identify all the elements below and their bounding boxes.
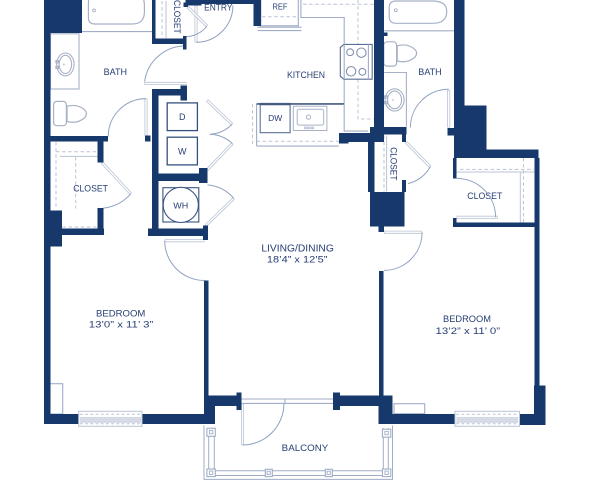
svg-text:CLOSET: CLOSET <box>171 0 182 34</box>
svg-text:13’2” x 11’ 0”: 13’2” x 11’ 0” <box>436 326 501 336</box>
svg-text:W: W <box>178 146 187 156</box>
svg-text:DW: DW <box>268 113 282 123</box>
svg-text:13’0” x 11’ 3”: 13’0” x 11’ 3” <box>89 319 154 329</box>
svg-text:WH: WH <box>173 200 188 210</box>
svg-text:CLOSET: CLOSET <box>73 184 108 195</box>
svg-text:REF: REF <box>273 2 288 11</box>
svg-text:18’4” x 12’5”: 18’4” x 12’5” <box>267 254 328 264</box>
svg-text:BALCONY: BALCONY <box>282 443 329 454</box>
svg-text:BATH: BATH <box>104 67 128 78</box>
svg-text:CLOSET: CLOSET <box>388 147 399 180</box>
svg-text:BATH: BATH <box>418 67 442 78</box>
svg-text:CLOSET: CLOSET <box>467 191 502 202</box>
svg-text:LIVING/DINING: LIVING/DINING <box>261 243 334 254</box>
svg-text:D: D <box>179 112 186 122</box>
svg-text:ENTRY: ENTRY <box>204 3 233 14</box>
svg-text:KITCHEN: KITCHEN <box>287 70 325 81</box>
svg-text:BEDROOM: BEDROOM <box>443 314 491 325</box>
svg-text:BEDROOM: BEDROOM <box>96 308 145 319</box>
